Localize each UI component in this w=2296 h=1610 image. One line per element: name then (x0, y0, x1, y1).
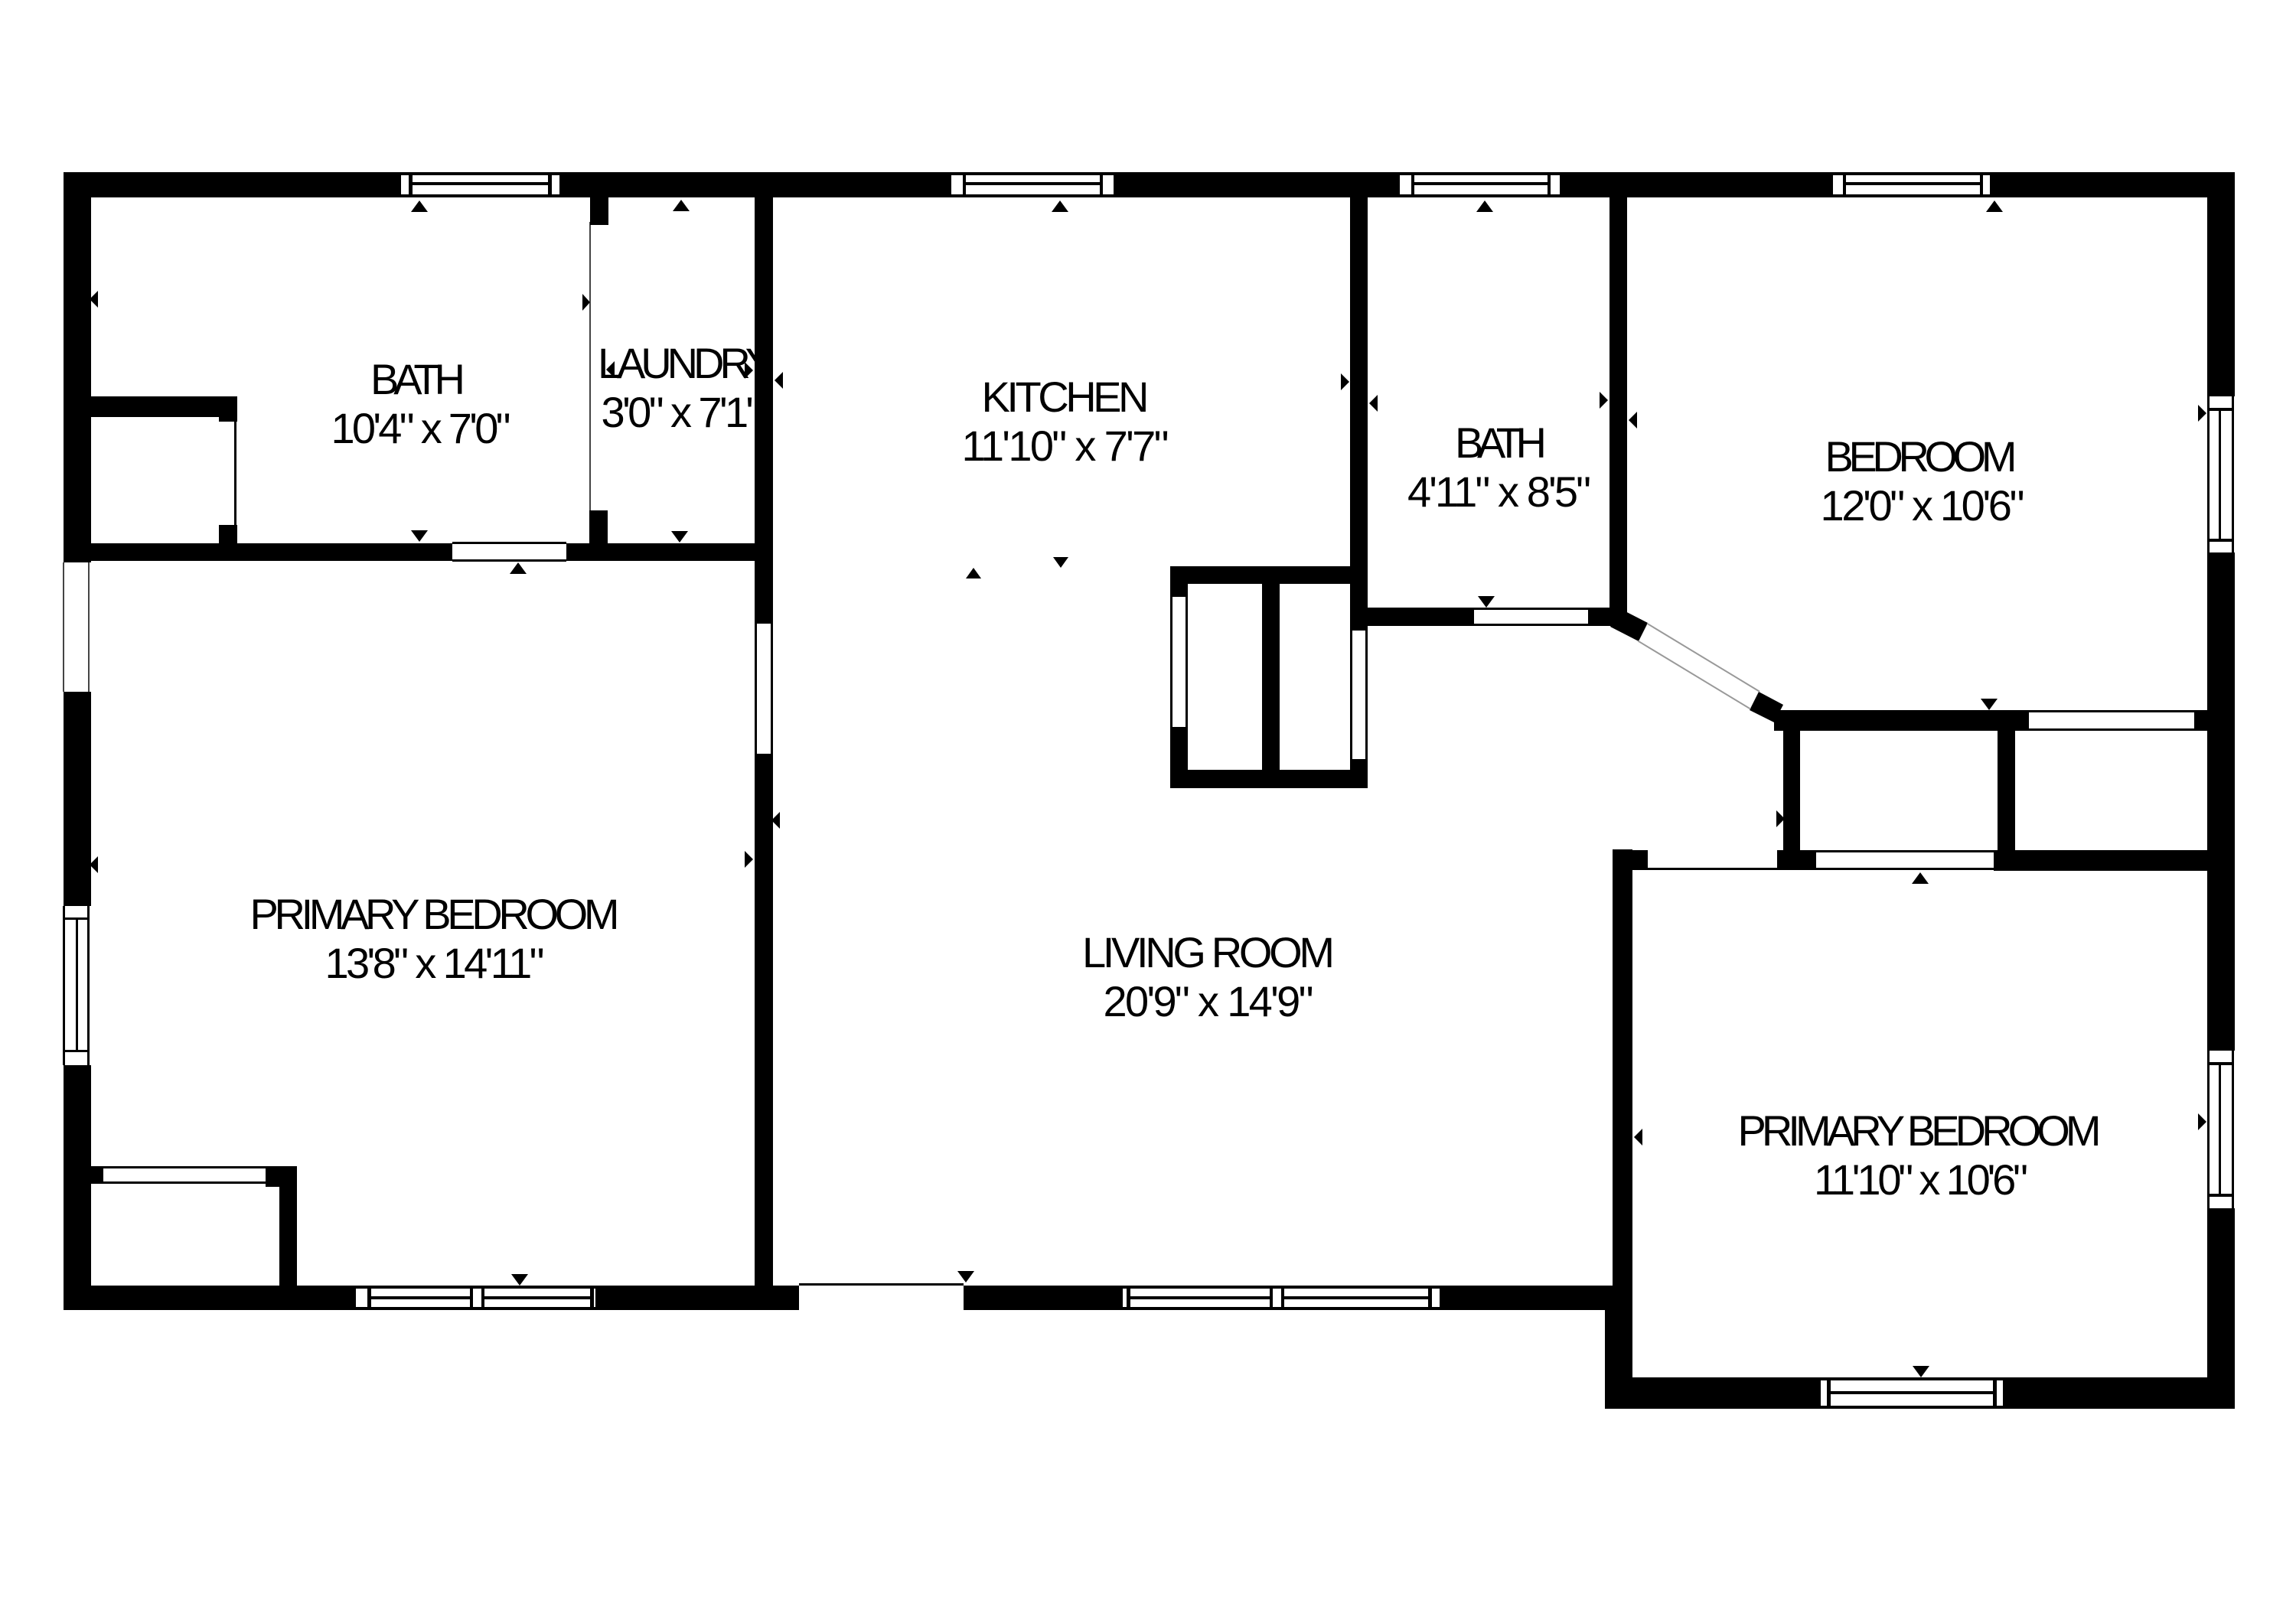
svg-text:KITCHEN: KITCHEN (982, 373, 1150, 421)
svg-text:10'4" x 7'0": 10'4" x 7'0" (331, 404, 511, 452)
svg-text:3'0" x 7'1": 3'0" x 7'1" (602, 388, 762, 436)
svg-text:PRIMARY BEDROOM: PRIMARY BEDROOM (1738, 1106, 2102, 1155)
svg-text:12'0" x 10'6": 12'0" x 10'6" (1821, 481, 2025, 530)
svg-text:PRIMARY BEDROOM: PRIMARY BEDROOM (250, 890, 620, 938)
svg-text:BATH: BATH (370, 355, 465, 403)
svg-text:BEDROOM: BEDROOM (1825, 432, 2017, 481)
svg-text:20'9" x 14'9": 20'9" x 14'9" (1104, 977, 1314, 1025)
svg-text:LIVING ROOM: LIVING ROOM (1082, 928, 1335, 976)
svg-text:4'11" x 8'5": 4'11" x 8'5" (1407, 468, 1591, 516)
svg-text:11'10" x 7'7": 11'10" x 7'7" (962, 422, 1169, 470)
svg-text:BATH: BATH (1455, 419, 1547, 467)
svg-text:LAUNDRY: LAUNDRY (598, 339, 774, 387)
svg-text:13'8" x 14'11": 13'8" x 14'11" (325, 939, 545, 987)
svg-text:11'10" x 10'6": 11'10" x 10'6" (1814, 1155, 2028, 1204)
